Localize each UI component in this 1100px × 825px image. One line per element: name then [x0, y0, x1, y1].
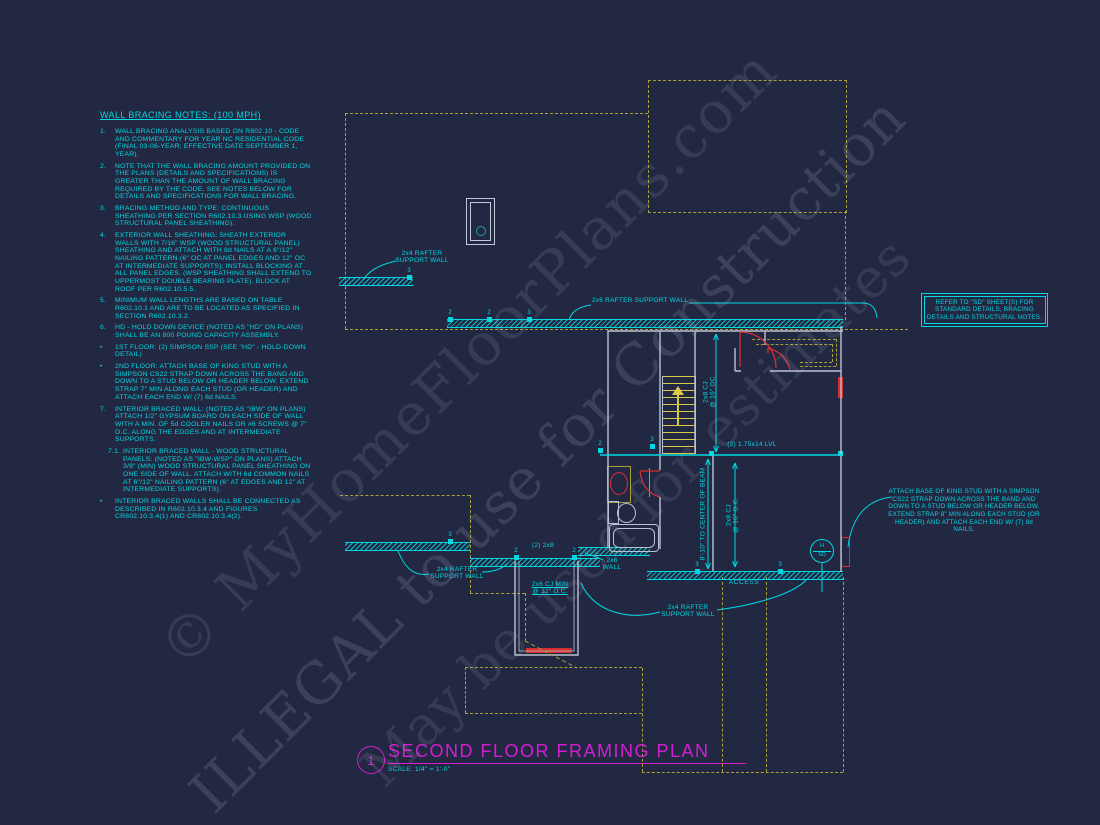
drawing-sheet: WALL BRACING NOTES: (100 MPH) 1.WALL BRA… — [0, 0, 1100, 825]
beam-tick — [838, 451, 843, 456]
closet-shelf — [832, 344, 833, 362]
note-item: •1ST FLOOR: (2) SIMPSON SSP (SEE "HD" - … — [100, 344, 312, 359]
label-attic-access: ACCESS — [724, 579, 764, 586]
bracing-marker: 3 — [403, 268, 415, 280]
king-stud-callout: ATTACH BASE OF KING STUD WITH A SIMPSON … — [888, 488, 1040, 534]
stair-up-arrowhead-icon — [672, 386, 684, 395]
label-2x4-rafter-support-wall: 2x4 RAFTER SUPPORT WALL — [659, 604, 717, 619]
note-item: 3.BRACING METHOD AND TYPE: CONTINUOUS SH… — [100, 205, 312, 228]
roof-outline-bottom-right — [843, 577, 844, 772]
label-2x4-rafter-support-wall: 2x4 RAFTER SUPPORT WALL — [428, 566, 486, 581]
roof-outline-left — [345, 113, 346, 329]
note-item: 2.NOTE THAT THE WALL BRACING AMOUNT PROV… — [100, 163, 312, 201]
bracing-marker: 3 — [774, 562, 786, 574]
chimney — [466, 198, 495, 245]
braced-wall-2x8-dormer — [470, 558, 600, 567]
stair-up-arrow — [677, 394, 679, 426]
closet-shelf — [756, 344, 832, 345]
note-item: •2ND FLOOR: ATTACH BASE OF KING STUD WIT… — [100, 363, 312, 401]
detail-number-bubble: 1 — [357, 746, 385, 774]
roof-outline-right — [845, 211, 846, 320]
wall-bracing-notes: WALL BRACING NOTES: (100 MPH) 1.WALL BRA… — [100, 110, 312, 525]
closet-shelf — [836, 339, 837, 366]
bracing-marker: 2 — [510, 548, 522, 560]
hold-down-symbol: H SD — [810, 539, 834, 563]
bracing-marker: 2 — [594, 441, 606, 453]
label-ceiling-joist-lower: 2x8 CJ @ 16" O.C. — [726, 493, 741, 537]
toilet-bowl — [617, 503, 636, 523]
note-item: 4.EXTERIOR WALL SHEATHING: SHEATH EXTERI… — [100, 232, 312, 293]
roof-outline-bottom — [642, 772, 843, 773]
bracing-marker: 3 — [523, 310, 535, 322]
roof-valley-line-2 — [766, 577, 767, 772]
bracing-marker: 3 — [646, 437, 658, 449]
note-item: 1.WALL BRACING ANALYSIS BASED ON R602.10… — [100, 128, 312, 159]
chimney-vent-icon — [476, 226, 486, 236]
label-2x6-rafter-support-wall: 2x6 RAFTER SUPPORT WALL — [590, 297, 690, 304]
roof-outline-dormer-side — [525, 593, 526, 641]
roof-outline-dormer-step — [470, 593, 525, 594]
label-beam-dimension: 8'-10" TO CENTER OF BEAM — [699, 468, 706, 561]
beam-tick — [709, 451, 714, 456]
roof-outline-notch-left — [465, 667, 466, 713]
window-marker — [841, 537, 850, 567]
closet-shelf — [752, 339, 836, 340]
label-2x6-wall: 2x6 WALL — [597, 557, 627, 572]
leader-lines — [363, 261, 892, 615]
roof-outline-top — [345, 113, 648, 114]
braced-panel-marker — [838, 377, 843, 398]
roof-valley-line-1 — [722, 577, 723, 772]
bracing-marker: 3 — [691, 562, 703, 574]
note-item: 7.INTERIOR BRACED WALL: (NOTED AS "IBW" … — [100, 406, 312, 444]
braced-wall-2x6-rafter-support — [447, 319, 843, 328]
bathtub-inner — [613, 528, 655, 548]
bracing-marker: 3 — [444, 532, 456, 544]
label-2x4-rafter-support-wall: 2x4 RAFTER SUPPORT WALL — [393, 250, 451, 265]
hd-symbol-bottom: SD — [811, 553, 833, 559]
sd-reference-note: REFER TO "SD" SHEET(S) FOR STANDARD DETA… — [924, 296, 1046, 325]
bracing-marker: 2 — [568, 548, 580, 560]
roof-outline-notch-bottom — [465, 713, 642, 714]
sd-reference-note-box: REFER TO "SD" SHEET(S) FOR STANDARD DETA… — [921, 293, 1048, 327]
title-underline — [388, 763, 746, 764]
hd-symbol-top: H — [811, 544, 833, 550]
braced-wall-2x4-upper-left — [339, 277, 413, 286]
sheet-scale: SCALE: 1/4" = 1'-0" — [388, 766, 450, 773]
roof-outline-notch-top — [465, 667, 642, 668]
dormer-sill — [526, 648, 572, 653]
note-item: 7.1.INTERIOR BRACED WALL - WOOD STRUCTUR… — [100, 448, 312, 494]
bathtub — [609, 524, 659, 552]
notes-title: WALL BRACING NOTES: (100 MPH) — [100, 110, 312, 120]
note-item: 6.HD - HOLD DOWN DEVICE (NOTED AS "HD" O… — [100, 324, 312, 339]
roof-outline-eave — [345, 329, 908, 330]
roof-outline-lower-left-top — [340, 495, 470, 496]
label-cj-min: 2x6 CJ MIN @ 32" O.C. — [527, 581, 573, 596]
note-item: 5.MINIMUM WALL LENGTHS ARE BASED ON TABL… — [100, 297, 312, 320]
bath-sink — [610, 472, 628, 495]
closet-shelf — [800, 366, 836, 367]
bracing-marker: 2 — [483, 310, 495, 322]
bath-wall-strip — [649, 468, 650, 497]
closet-shelf — [800, 362, 832, 363]
label-2x8-pair: (2) 2x8 — [524, 542, 562, 549]
roof-valley-diagonal — [525, 641, 577, 668]
note-item: •INTERIOR BRACED WALLS SHALL BE CONNECTE… — [100, 498, 312, 521]
roof-outline-upper-right — [648, 80, 847, 213]
sheet-title: SECOND FLOOR FRAMING PLAN — [388, 741, 710, 762]
label-lvl-beam: (2) 1.75x14 LVL — [719, 441, 785, 448]
label-ceiling-joist-upper: 2x8 CJ @ 16" OC — [703, 370, 718, 414]
bracing-marker: 2 — [444, 310, 456, 322]
